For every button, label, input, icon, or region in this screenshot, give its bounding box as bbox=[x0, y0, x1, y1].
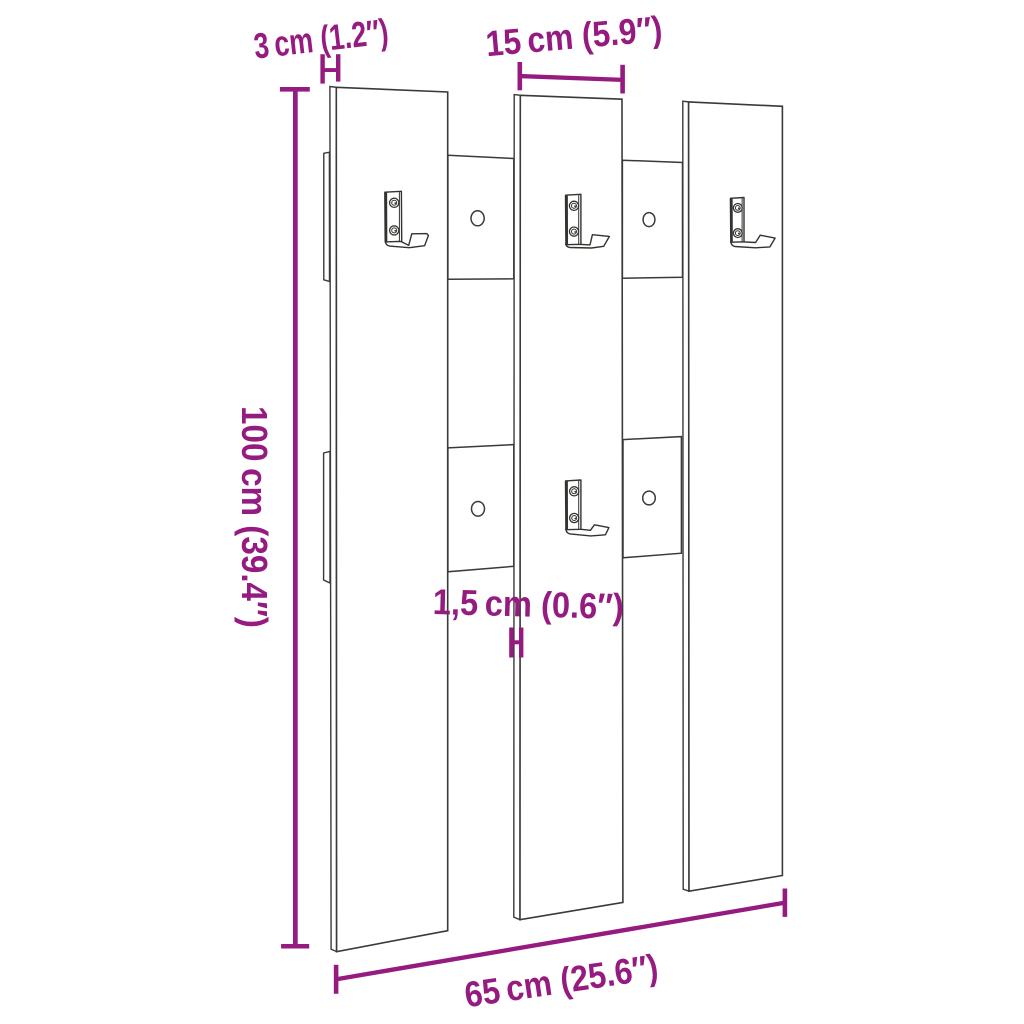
svg-text:1,5 cm (0.6″): 1,5 cm (0.6″) bbox=[432, 581, 624, 627]
svg-text:100 cm (39.4″): 100 cm (39.4″) bbox=[234, 406, 275, 628]
